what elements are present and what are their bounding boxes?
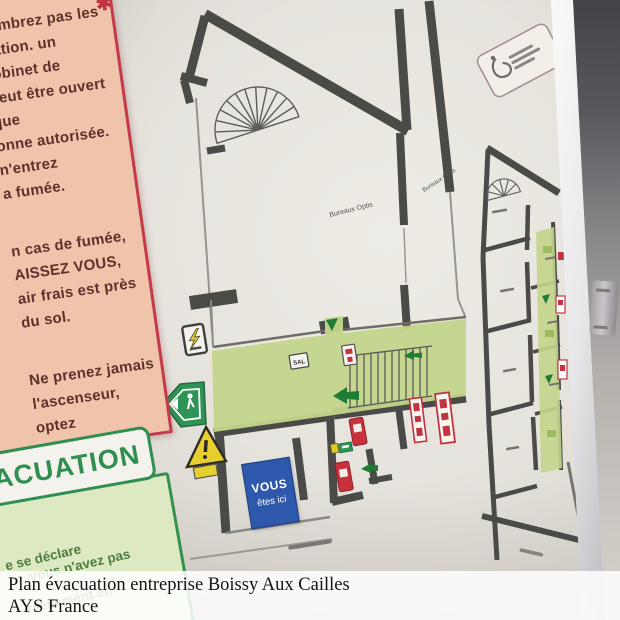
you-are-here-line1: VOUS — [251, 476, 289, 495]
room-label-bureaux: Bureaux Optis — [329, 201, 374, 219]
extinguisher-wall-sign — [342, 344, 358, 366]
photo-evacuation-plan-board: Bureaux Optis Bureaux Optis SAL — [0, 0, 620, 620]
image-caption: Plan évacuation entreprise Boissy Aux Ca… — [0, 571, 620, 620]
legend-sign — [475, 22, 565, 99]
instructions-paragraph: combrez pas les uation. un robinet de pe… — [0, 0, 132, 207]
instructions-paragraph: n cas de fumée, AISSEZ VOUS, air frais e… — [10, 223, 150, 336]
you-are-here-marker: VOUS êtes ici — [241, 457, 300, 530]
wall-mount-bracket — [589, 280, 619, 336]
caption-title: Plan évacuation entreprise Boissy Aux Ca… — [8, 574, 620, 596]
you-are-here-line2: êtes ici — [256, 494, 287, 509]
spiral-staircase-icon — [204, 76, 299, 143]
sal-sign: SAL — [289, 353, 309, 370]
electrical-cutoff-icon — [182, 324, 207, 356]
main-plan-walls — [181, 1, 466, 559]
caption-subtitle: AYS France — [8, 596, 620, 618]
